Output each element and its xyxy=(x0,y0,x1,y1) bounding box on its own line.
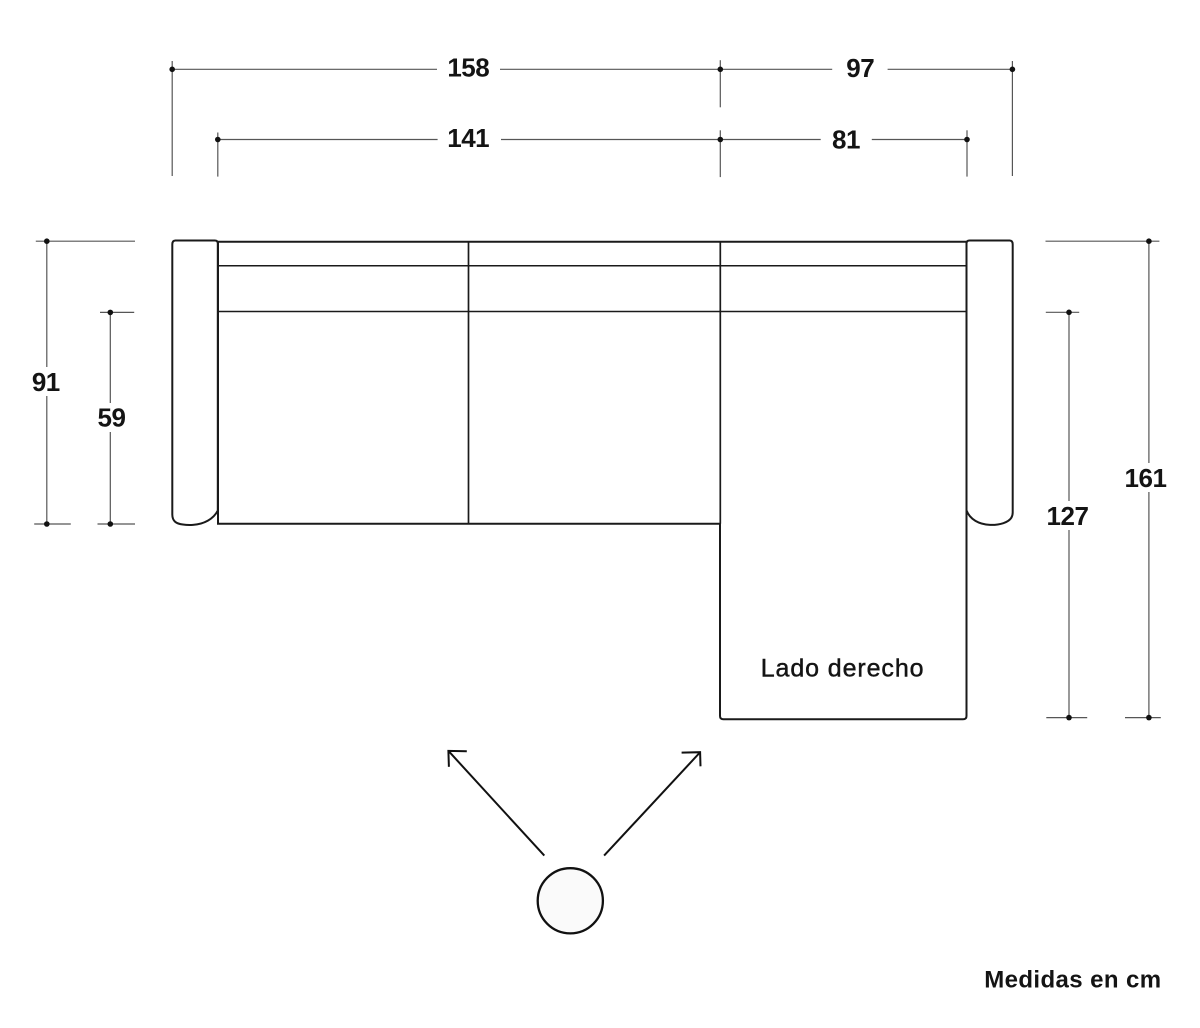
svg-text:127: 127 xyxy=(1047,501,1089,531)
svg-text:59: 59 xyxy=(98,403,126,433)
svg-text:161: 161 xyxy=(1125,463,1167,493)
svg-text:91: 91 xyxy=(32,367,60,397)
svg-text:158: 158 xyxy=(447,52,489,82)
svg-text:97: 97 xyxy=(846,53,874,83)
svg-text:Medidas en cm: Medidas en cm xyxy=(984,967,1161,994)
svg-text:Lado derecho: Lado derecho xyxy=(761,655,925,683)
svg-text:141: 141 xyxy=(447,123,489,153)
svg-text:81: 81 xyxy=(832,124,860,154)
